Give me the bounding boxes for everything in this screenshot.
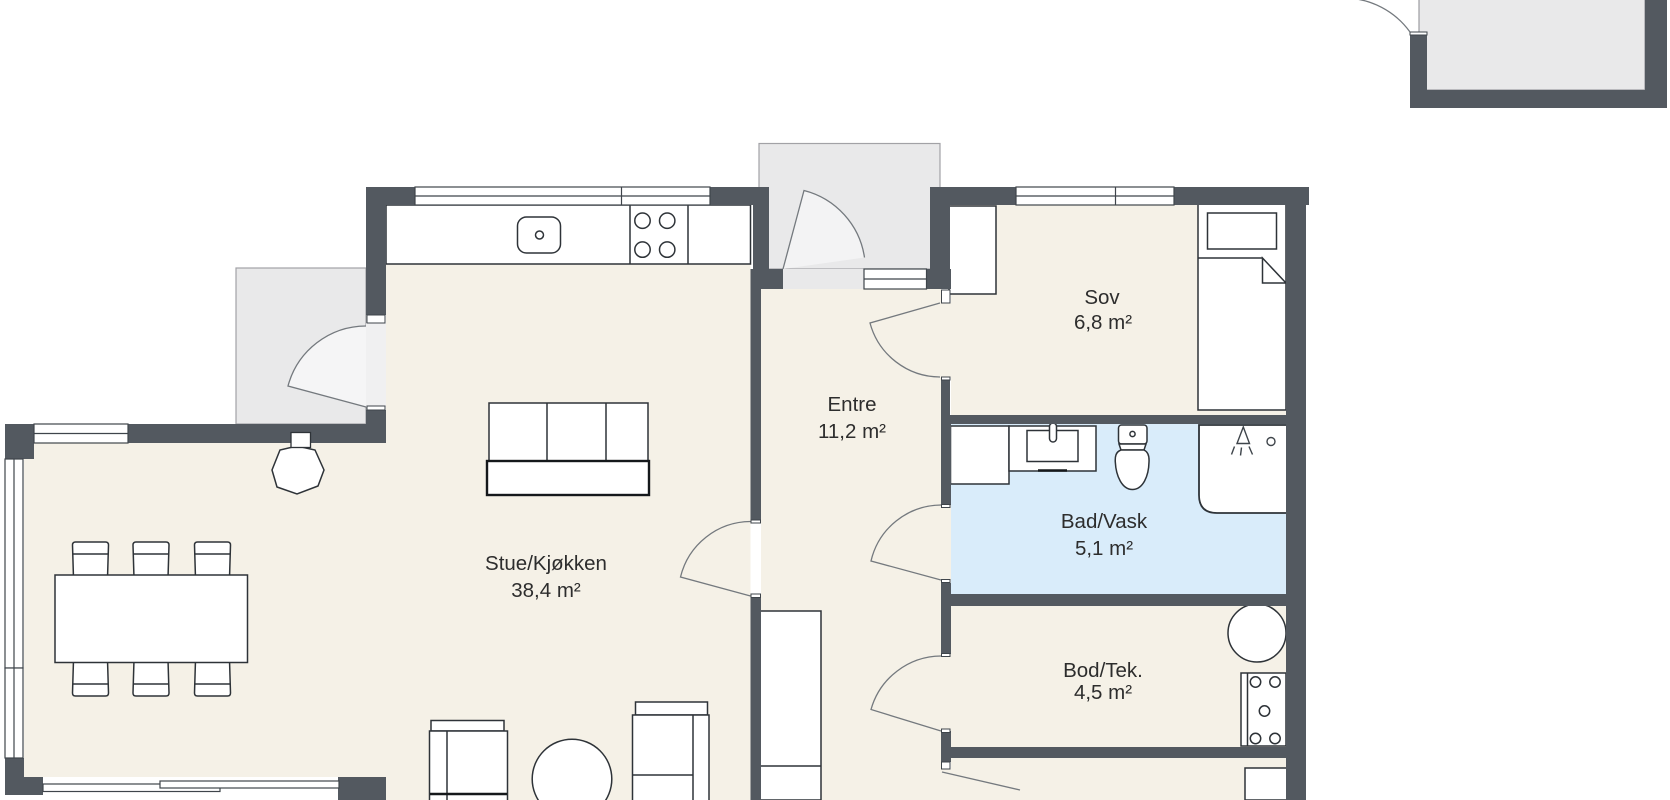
svg-text:Stue/Kjøkken: Stue/Kjøkken (485, 552, 607, 575)
svg-text:38,4 m²: 38,4 m² (511, 579, 581, 602)
svg-text:Bod/Tek.: Bod/Tek. (1063, 659, 1143, 682)
svg-text:11,2 m²: 11,2 m² (818, 420, 886, 443)
svg-text:Bad/Vask: Bad/Vask (1061, 510, 1148, 533)
svg-text:6,8 m²: 6,8 m² (1074, 311, 1132, 334)
svg-text:Entre: Entre (828, 393, 877, 416)
svg-text:Sov: Sov (1084, 286, 1120, 309)
svg-text:4,5 m²: 4,5 m² (1074, 681, 1132, 704)
svg-text:5,1 m²: 5,1 m² (1075, 537, 1133, 560)
